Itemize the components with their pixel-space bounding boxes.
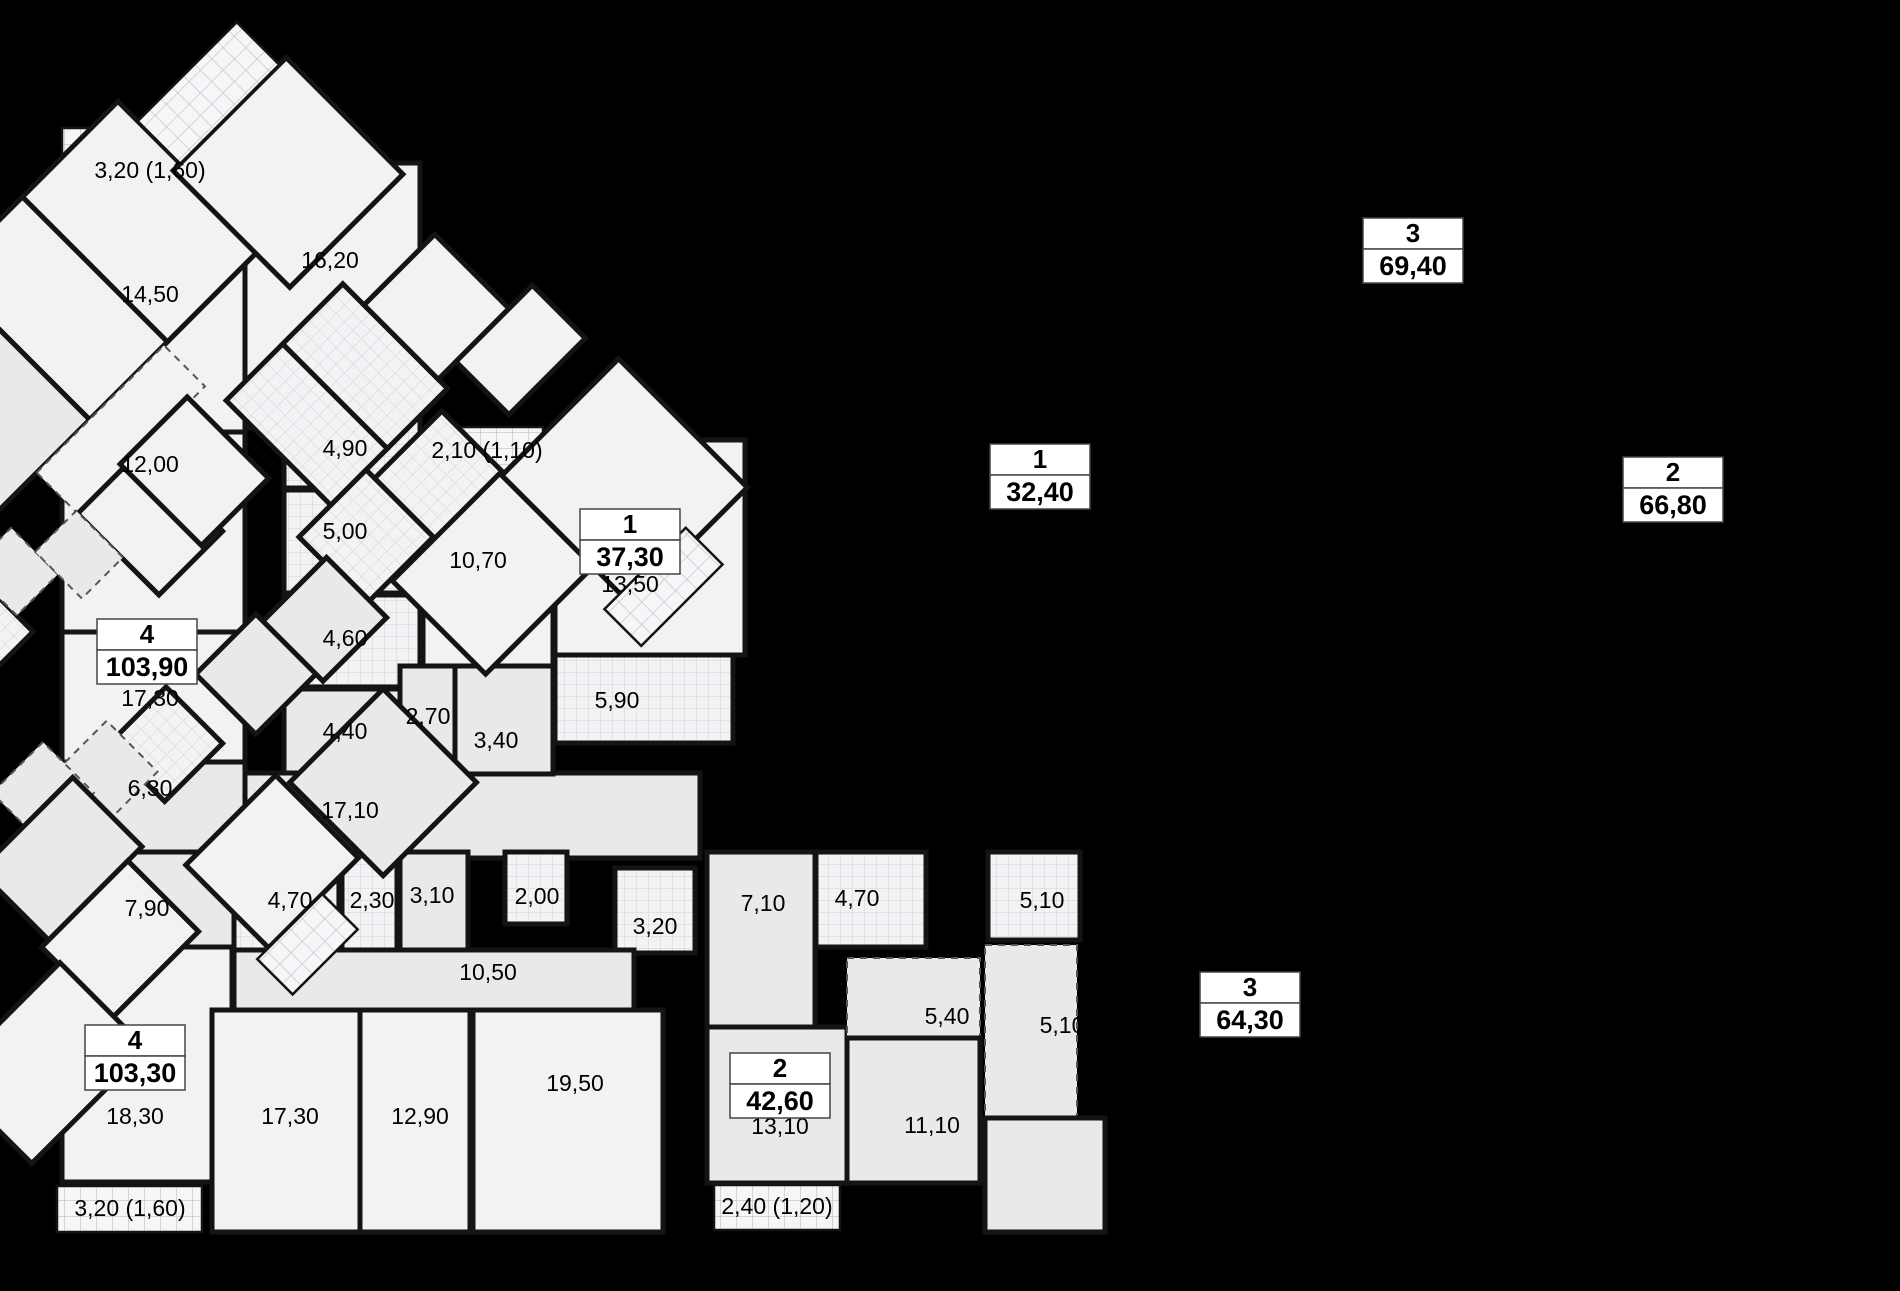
- room-area-label: 18,30: [106, 1103, 164, 1129]
- room-area-label: 2,40(1,20): [1367, 941, 1427, 989]
- room-area-label: 10,70: [449, 547, 507, 573]
- bathroom-area: [555, 655, 733, 743]
- room-area-label: 2,70: [1192, 782, 1237, 808]
- room-area-label: 4,80: [1048, 656, 1093, 682]
- apartment-rooms-count: 2: [773, 1053, 787, 1083]
- apartment-total-area: 66,80: [1639, 490, 1707, 520]
- apartment-label-box: 132,40: [990, 444, 1090, 509]
- room-area-label: 16,20: [301, 247, 359, 273]
- room-area-label: 12,90: [391, 1103, 449, 1129]
- apartment-total-area: 69,40: [1379, 251, 1447, 281]
- room-area-label: 4,90: [323, 435, 368, 461]
- room-area-label: 14,30: [1239, 283, 1297, 309]
- room-area-label: 4,00: [1246, 754, 1291, 780]
- room-area-label: 17,30: [261, 1103, 319, 1129]
- room-area-label: 4,40: [323, 718, 368, 744]
- room-area: [985, 1118, 1105, 1232]
- apartment-total-area: 32,40: [1006, 477, 1074, 507]
- room-area-label: 6,30: [128, 775, 173, 801]
- apartment-label-box: 4103,30: [85, 1025, 185, 1090]
- room-area-label: 5,10: [1020, 887, 1065, 913]
- room-area-label: 17,10: [321, 797, 379, 823]
- apartment-label-box: 266,80: [1623, 457, 1723, 522]
- room-area-label: 5,00: [323, 518, 368, 544]
- room-area-label: 15,60: [993, 416, 1051, 442]
- apartment-rooms-count: 2: [1666, 457, 1680, 487]
- room-area-label: 3,20: [633, 913, 678, 939]
- room-area-label: 4,70: [835, 885, 880, 911]
- room-area-label: 12,00: [121, 451, 179, 477]
- room-area-label: 2,60(1,30): [1730, 559, 1790, 607]
- apartment-rooms-count: 4: [128, 1025, 143, 1055]
- room-area-label: 5,40: [1378, 445, 1423, 471]
- room-area-label: 5,10: [1040, 1012, 1085, 1038]
- floor-plan: 3,20 (1,60)14,5016,2012,004,905,004,604,…: [0, 0, 1900, 1291]
- room-area: [473, 1010, 663, 1232]
- room-area-label: 3,20 (1,60): [94, 157, 205, 183]
- apartment-label-box: 137,30: [580, 509, 680, 574]
- room-area-label: 7,10: [741, 890, 786, 916]
- apartment-rooms-count: 1: [623, 509, 637, 539]
- bathroom-area: [615, 868, 695, 953]
- room-area-label: 4,60: [323, 625, 368, 651]
- apartment-rooms-count: 3: [1406, 218, 1420, 248]
- room-area-label: 2,70: [1095, 578, 1140, 604]
- apartment-label-box: 242,60: [730, 1053, 830, 1118]
- room-area-label: 2,10: [1129, 806, 1174, 832]
- room-area-label: 9,50: [1099, 326, 1144, 352]
- room-area-label: 10,50: [459, 959, 517, 985]
- room-area-label: 3,60: [1340, 684, 1385, 710]
- room-area: [847, 1038, 980, 1183]
- room-area-label: 2,00: [515, 883, 560, 909]
- room-area-label: 6,20: [977, 560, 1022, 586]
- room-area-label: 6,40: [1175, 428, 1220, 454]
- room-area-label: 3,20 (1,60): [74, 1195, 185, 1221]
- room-area-label: 14,00: [1563, 586, 1621, 612]
- apartment-rooms-count: 3: [1243, 972, 1257, 1002]
- room-area-label: 5,40: [1263, 463, 1308, 489]
- apartment-total-area: 103,90: [106, 652, 189, 682]
- apartment-total-area: 64,30: [1216, 1005, 1284, 1035]
- apartment-rooms-count: 4: [140, 619, 155, 649]
- apartment-label-box: 364,30: [1200, 972, 1300, 1037]
- room-area-label: 4,80: [1440, 541, 1485, 567]
- room-area-label: 2,50(1,30): [1292, 103, 1352, 151]
- room-area-label: 19,50: [546, 1070, 604, 1096]
- room-area-label: 2,10 (1,10): [431, 437, 542, 463]
- room-area-label: 3,00: [1524, 343, 1569, 369]
- room-area-label: 5,90: [595, 687, 640, 713]
- room-area-label: 5,40: [925, 1003, 970, 1029]
- room-area-label: 3,40: [474, 727, 519, 753]
- apartment-rooms-count: 1: [1033, 444, 1047, 474]
- room-area-label: 14,50: [121, 281, 179, 307]
- room-area-label: 13,50: [601, 571, 659, 597]
- apartment-total-area: 103,30: [94, 1058, 177, 1088]
- room-area-label: 2,40(0,70): [923, 301, 983, 349]
- room-area-label: 3,50: [1525, 495, 1570, 521]
- room-area-label: 4,70: [268, 887, 313, 913]
- room-area-label: 3,10: [1223, 532, 1268, 558]
- room-area-label: 7,90: [125, 895, 170, 921]
- apartment-label-box: 4103,90: [97, 619, 197, 684]
- room-area-label: 5,40: [1393, 642, 1438, 668]
- floor-plan-svg: 3,20 (1,60)14,5016,2012,004,905,004,604,…: [0, 0, 1900, 1291]
- room-area-label: 2,40: [1153, 573, 1198, 599]
- room-area-label: 2,40 (1,20): [721, 1193, 832, 1219]
- apartment-label-box: 369,40: [1363, 218, 1463, 283]
- room-area: [455, 666, 553, 774]
- room-area-label: 2,70: [406, 703, 451, 729]
- apartment-total-area: 37,30: [596, 542, 664, 572]
- room-area-label: 17,30: [121, 685, 179, 711]
- room-area-label: 17,10: [1361, 188, 1419, 214]
- room-area-label: 11,20: [1346, 874, 1402, 900]
- room-area-label: 6,60: [1129, 883, 1174, 909]
- room-area-label: 2,30: [350, 887, 395, 913]
- room-area-label: 14,50: [1113, 1083, 1171, 1109]
- room-area-label: 3,90: [1440, 383, 1485, 409]
- room-area-label: 14,60: [1458, 796, 1516, 822]
- room-area-label: 2,80: [1579, 351, 1624, 377]
- room-area-label: 3,10: [410, 882, 455, 908]
- room-area-label: 11,10: [904, 1112, 960, 1138]
- apartment-total-area: 42,60: [746, 1086, 814, 1116]
- room-area: [707, 852, 815, 1027]
